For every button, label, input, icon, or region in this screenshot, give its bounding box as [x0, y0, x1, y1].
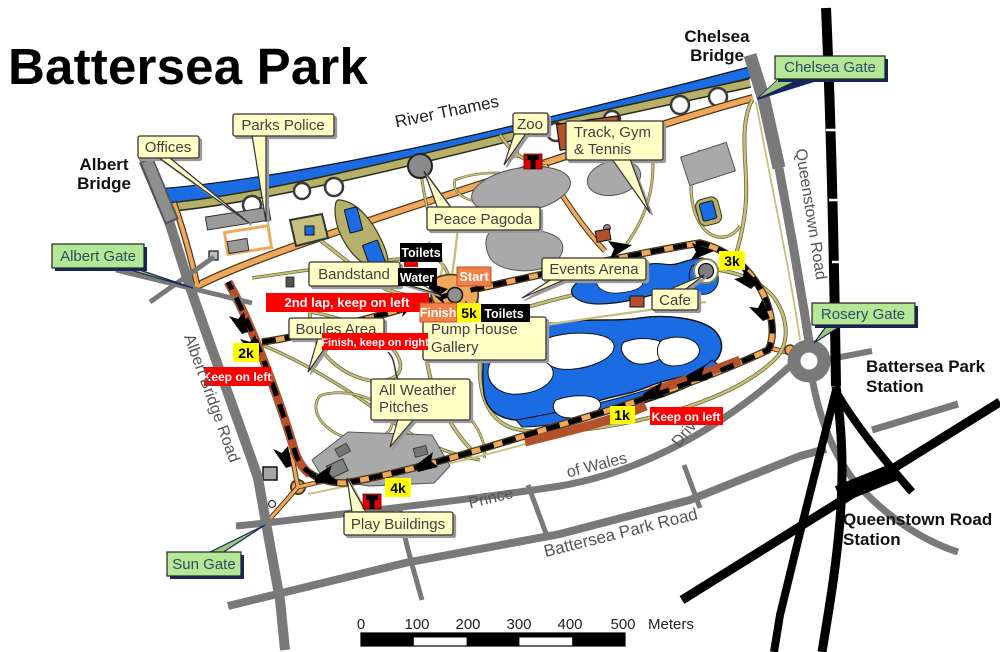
svg-text:4k: 4k — [390, 480, 406, 496]
svg-text:Cafe: Cafe — [659, 292, 691, 309]
svg-text:500: 500 — [610, 616, 635, 633]
svg-text:Meters: Meters — [648, 616, 694, 633]
svg-text:Station: Station — [843, 530, 901, 549]
svg-text:300: 300 — [506, 616, 531, 633]
svg-text:Offices: Offices — [145, 139, 191, 156]
svg-text:Rosery Gate: Rosery Gate — [821, 306, 905, 323]
svg-text:All Weather: All Weather — [379, 382, 456, 399]
svg-text:Chelsea: Chelsea — [684, 27, 750, 46]
svg-text:Peace Pagoda: Peace Pagoda — [434, 211, 533, 228]
svg-text:Toilets: Toilets — [401, 246, 440, 260]
svg-text:Battersea Park: Battersea Park — [866, 357, 986, 376]
svg-text:Events Arena: Events Arena — [549, 261, 639, 278]
svg-text:100: 100 — [404, 616, 429, 633]
svg-text:Gallery: Gallery — [431, 339, 479, 356]
svg-text:Albert Gate: Albert Gate — [60, 248, 136, 265]
svg-text:400: 400 — [557, 616, 582, 633]
svg-text:Queenstown Road: Queenstown Road — [843, 510, 992, 529]
svg-text:Bandstand: Bandstand — [318, 266, 390, 283]
svg-text:Water: Water — [400, 271, 434, 285]
svg-text:Finish, keep on right: Finish, keep on right — [321, 337, 429, 349]
svg-text:Zoo: Zoo — [517, 116, 543, 133]
svg-text:Toilets: Toilets — [484, 307, 523, 321]
svg-text:0: 0 — [357, 616, 365, 633]
svg-text:Bridge: Bridge — [77, 174, 131, 193]
svg-text:Sun Gate: Sun Gate — [172, 556, 235, 573]
svg-text:5k: 5k — [461, 305, 477, 321]
svg-text:Pitches: Pitches — [379, 399, 428, 416]
svg-text:200: 200 — [455, 616, 480, 633]
svg-text:Station: Station — [866, 377, 924, 396]
svg-text:3k: 3k — [724, 253, 740, 269]
svg-text:Bridge: Bridge — [690, 46, 744, 65]
svg-text:Start: Start — [459, 269, 489, 284]
svg-text:Track, Gym: Track, Gym — [574, 124, 651, 141]
svg-text:2k: 2k — [238, 345, 254, 361]
svg-text:Pump House: Pump House — [431, 321, 518, 338]
svg-text:1k: 1k — [614, 407, 630, 423]
svg-text:Parks Police: Parks Police — [241, 117, 324, 134]
svg-text:Chelsea Gate: Chelsea Gate — [784, 59, 876, 76]
svg-text:Albert: Albert — [79, 155, 128, 174]
svg-text:Battersea Park: Battersea Park — [8, 38, 368, 95]
svg-text:Play Buildings: Play Buildings — [351, 516, 445, 533]
svg-text:2nd lap, keep on left: 2nd lap, keep on left — [285, 295, 411, 310]
svg-text:& Tennis: & Tennis — [574, 141, 631, 158]
svg-text:Finish: Finish — [420, 306, 457, 320]
